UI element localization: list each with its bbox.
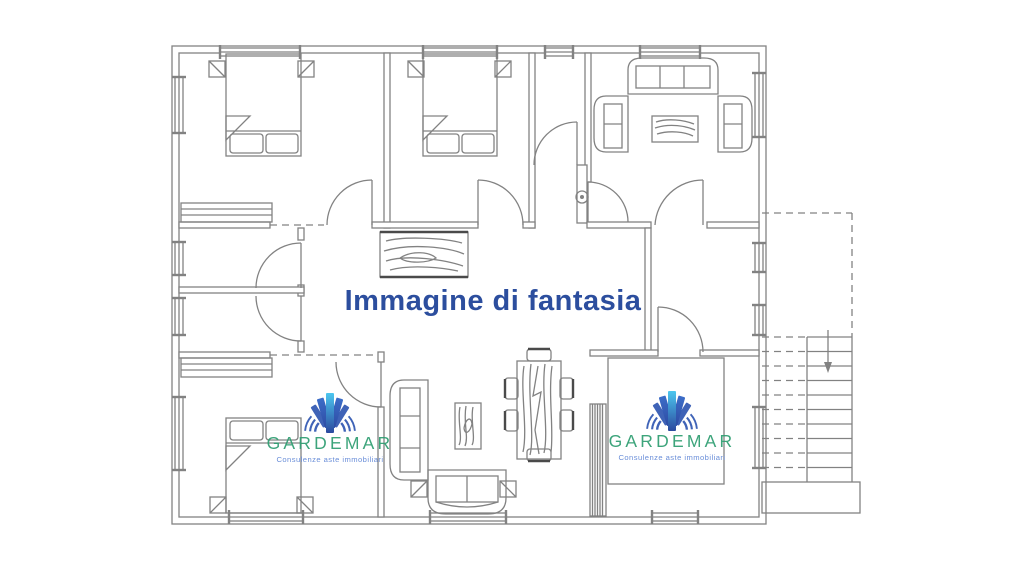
- armchair-right: [718, 96, 752, 152]
- staircase: [762, 213, 860, 513]
- dining-table-set: [505, 349, 573, 461]
- gardemar-watermark-right: GARDEMAR Consulenze aste immobiliari: [587, 390, 757, 461]
- door-swings: [256, 122, 703, 407]
- armchair-left: [594, 96, 628, 152]
- small-rug: [455, 403, 481, 449]
- gardemar-fan-icon: [634, 390, 710, 432]
- hall-rug: [380, 232, 468, 277]
- brand-name: GARDEMAR: [267, 435, 394, 453]
- wardrobe-upper: [181, 203, 272, 222]
- brand-name: GARDEMAR: [609, 433, 736, 451]
- loveseat: [428, 470, 506, 514]
- coffee-table: [652, 116, 698, 142]
- sofa-top: [628, 58, 718, 94]
- fantasy-image-disclaimer: Immagine di fantasia: [345, 285, 642, 318]
- brand-tagline: Consulenze aste immobiliari: [618, 454, 725, 462]
- bed-top-middle: [423, 54, 497, 156]
- wardrobe-lower: [181, 358, 272, 377]
- bed-top-left: [226, 54, 301, 156]
- side-tables: [411, 481, 516, 497]
- gardemar-watermark-left: GARDEMAR Consulenze aste immobiliari: [245, 392, 415, 463]
- floorplan-image: Immagine di fantasia GARDEMAR Consulenze…: [0, 0, 1024, 576]
- stair-direction-arrow: [824, 362, 832, 373]
- brand-tagline: Consulenze aste immobiliari: [276, 456, 383, 464]
- gardemar-fan-icon: [292, 392, 368, 434]
